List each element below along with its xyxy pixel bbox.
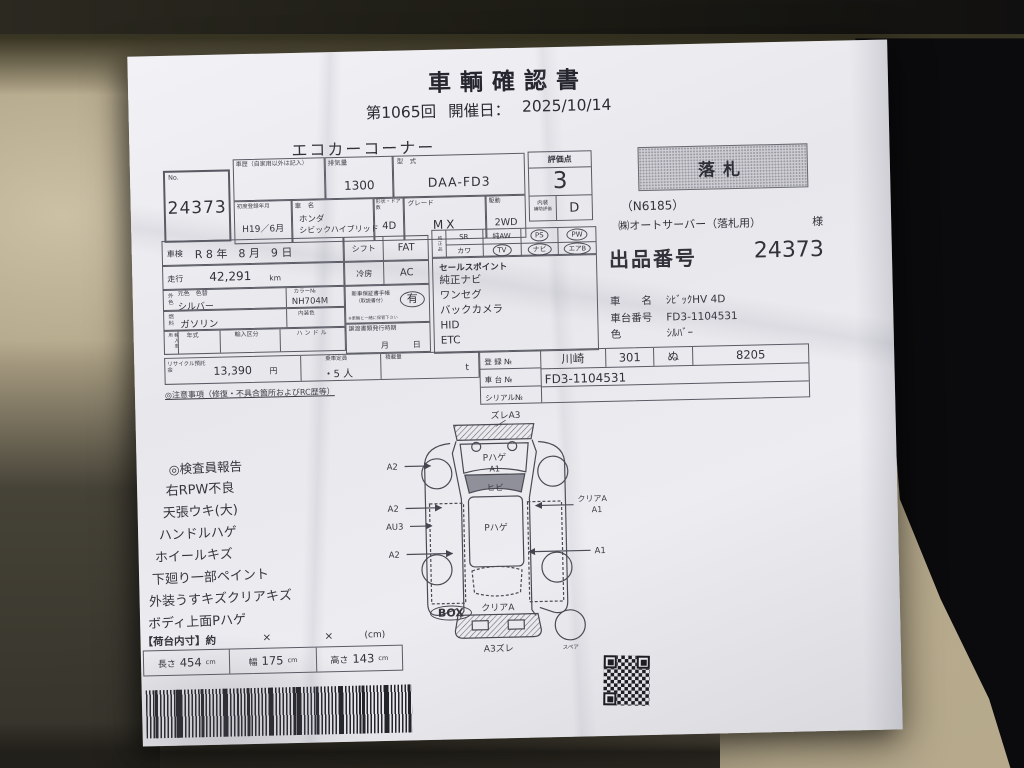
diagram-label-rear: クリアA [481, 602, 515, 614]
exhibit-number-label: 出品番号 [609, 242, 698, 273]
history-cell: 車歴（自家用以外は記入） [233, 157, 326, 201]
displacement-value: 1300 [326, 178, 392, 193]
handle-label: ハンドル [297, 330, 329, 338]
color-heads: 元色 色替 [178, 291, 208, 299]
shift-value: FAT [382, 236, 430, 260]
recycle-row: リサイクル預託金 13,390 円 乗車定員 ・5 人 積載量 t [164, 351, 480, 385]
document-title: 車輌確認書 [318, 58, 699, 101]
inspection-value: R 8 年 8 月 9 日 [195, 244, 293, 262]
winning-bid-stamp: 落札 [637, 143, 808, 191]
exterior-color-label: 外色 [166, 293, 174, 306]
oem-tv: TV [492, 244, 511, 256]
height-unit: cm [378, 654, 388, 662]
reg-no-label: 登 録 № [480, 350, 540, 369]
model-code-label: 型 式 [397, 158, 417, 166]
mileage-label: 走行 [167, 273, 183, 284]
transfer-day: 日 [413, 339, 421, 350]
import-row: 輸入車用 年式 輸入区分 ハンドル [164, 327, 346, 355]
diagram-label-hood: Pハゲ [483, 451, 507, 464]
interior-rating-row: 内装 補助評価 D [530, 194, 593, 220]
shift-row: シフト FAT [343, 235, 429, 262]
displacement-cell: 排気量 1300 [325, 156, 394, 200]
diagram-label-hood-grade: A1 [489, 464, 500, 473]
diagram-label-windshield: ヒビ [487, 483, 504, 493]
drive-value: 2WD [487, 217, 525, 229]
ac-label: 冷房 [345, 262, 384, 285]
fuel-label: 燃料 [166, 314, 174, 327]
oem-pw: PW [566, 228, 587, 240]
length-label: 長さ [158, 656, 176, 669]
mileage-value: 42,291 [209, 269, 251, 284]
cargo-dims-label: 【荷台内寸】約 [142, 633, 216, 650]
model-code-cell: 型 式 DAA-FD3 [393, 153, 526, 198]
cargo-x2: × [324, 630, 333, 642]
width-unit: cm [287, 656, 297, 664]
ac-row: 冷房 AC [344, 260, 430, 286]
oem-pw-wrap: PW [559, 227, 596, 242]
oem-airbag-wrap: エアB [559, 241, 596, 255]
caution-note: ◎注意事項（修復・不具合箇所およびRC歴等） [165, 386, 335, 401]
car-damage-diagram: ズレA3 Pハゲ A1 ヒビ Pハゲ A2 A2 AU3 A2 クリアA A1 … [383, 403, 659, 659]
diagram-label-bottom: A3ズレ [484, 642, 514, 655]
dimension-table: 長さ 454 cm 幅 175 cm 高さ 143 cm [143, 645, 404, 677]
diagram-label-right-3: A1 [594, 546, 605, 556]
seats-label: 乗車定員 [325, 356, 347, 363]
interior-color-label: 内装色 [298, 311, 315, 318]
divider [178, 332, 179, 354]
cargo-x1: × [262, 632, 271, 644]
divider [286, 309, 287, 327]
divider [220, 331, 221, 353]
dark-top-strip [0, 0, 1024, 34]
car-maker: ホンダ [299, 212, 325, 225]
interior-rating-value: D [557, 195, 593, 220]
height-label: 高さ [330, 652, 348, 665]
divider [286, 288, 287, 307]
oem-navi: ナビ [527, 243, 551, 256]
qr-finder [603, 692, 616, 705]
lot-no-label: No. [168, 175, 179, 183]
drive-label: 駆動 [489, 198, 501, 205]
transfer-row: 譲渡書類発行時期 月 日 [345, 322, 431, 354]
length-value: 454 [180, 655, 202, 669]
diagram-label-left-4: A2 [389, 551, 400, 561]
bidder-row: ㈱オートサーバー（落札用） 様 [618, 213, 823, 234]
warranty-label-wrap: 新車保証書手帳 （取説書付） [348, 289, 394, 305]
car-name-value: シビックハイブリッド [299, 223, 379, 236]
width-label: 幅 [248, 654, 257, 667]
displacement-label: 排気量 [328, 160, 348, 168]
inspection-label: 車検 [167, 249, 183, 260]
oem-ps: PS [530, 229, 549, 241]
oem-navi-wrap: ナビ [521, 242, 559, 256]
diagram-label-right-2: A1 [592, 505, 603, 514]
oem-ps-wrap: PS [521, 228, 559, 243]
car-name-label: 車 名 [295, 203, 315, 211]
qr-code [603, 655, 650, 706]
oem-alloy-wheels: 純AW [483, 229, 521, 244]
awarded-car-details: 車 名ｼﾋﾞｯｸHV 4D 車台番号FD3-1104531 色ｼﾙﾊﾞｰ [610, 291, 738, 343]
doors-value: 4D [375, 220, 403, 232]
width-value: 175 [261, 653, 283, 667]
interior-rating-label: 内装 補助評価 [530, 196, 558, 221]
oem-equipment-table: 純正品 SR 純AW PS PW カワ TV ナビ エアB [431, 226, 597, 258]
sales-point-item: ETC [441, 330, 592, 348]
awarded-chassis-row: 車台番号FD3-1104531 [610, 307, 738, 326]
oem-airbag: エアB [563, 242, 591, 255]
rating-box: 評価点 3 内装 補助評価 D [528, 150, 594, 221]
mileage-unit: km [269, 273, 281, 282]
grade-label: グレード [408, 200, 434, 208]
doors-label: 形状・ドア数 [376, 200, 403, 212]
import-class-label: 輸入区分 [235, 332, 259, 339]
diagram-label-spare: スペア [563, 644, 580, 651]
oem-leather: カワ [446, 244, 484, 258]
bidder-honorific: 様 [812, 213, 823, 229]
held-date: 2025/10/14 [522, 96, 612, 120]
diagram-label-left-1: A2 [387, 463, 398, 473]
rating-score: 3 [529, 166, 592, 195]
reg-area: 川崎 [540, 349, 606, 368]
registration-table: 登 録 № 車 台 № シリアル№ 川崎 301 ぬ 8205 FD3-1104… [479, 343, 810, 404]
chassis-no-label: 車 台 № [480, 368, 540, 387]
reg-class: 301 [606, 348, 654, 367]
width-cell: 幅 175 cm [230, 648, 317, 674]
awarded-name-label: 車 名 [610, 293, 666, 311]
awarded-chassis-value: FD3-1104531 [666, 309, 738, 323]
session-round: 第1065回 [365, 100, 436, 124]
barcode [146, 684, 413, 738]
height-value: 143 [352, 651, 374, 665]
shift-label: シフト [344, 237, 384, 261]
load-unit: t [465, 363, 469, 373]
qr-finder [637, 656, 650, 669]
exhibit-number-value: 24373 [754, 237, 825, 264]
divider [380, 354, 382, 379]
diagram-label-roof: Pハゲ [484, 521, 508, 534]
diagram-label-left-3: AU3 [386, 523, 404, 533]
divider [300, 356, 302, 381]
lot-number: 24373 [166, 197, 229, 218]
recycle-label: リサイクル預託金 [167, 361, 209, 375]
warranty-row: 新車保証書手帳 （取説書付） 有 ※車輌と一緒に保管下さい [345, 284, 431, 324]
held-date-label: 開催日： [448, 98, 510, 121]
color-no-label: カラー№ [294, 288, 316, 295]
awarded-color-value: ｼﾙﾊﾞｰ [667, 327, 694, 340]
divider [279, 329, 280, 351]
first-registration-value: H19／6月 [235, 221, 291, 235]
diagram-label-left-2: A2 [388, 505, 399, 515]
history-label: 車歴（自家用以外は記入） [236, 161, 308, 170]
length-unit: cm [206, 658, 216, 666]
lot-number-box: No. 24373 [163, 169, 232, 243]
fuel-value: ガソリン [180, 316, 218, 331]
model-code-value: DAA-FD3 [394, 173, 524, 191]
load-label: 積載量 [385, 355, 402, 362]
import-year-label: 年式 [187, 333, 199, 340]
cargo-unit-note: (cm) [364, 630, 385, 640]
qr-finder [604, 655, 617, 668]
awarded-color-row: 色ｼﾙﾊﾞｰ [611, 324, 739, 343]
reg-kana: ぬ [654, 347, 693, 366]
registration-label-col: 登 録 № 車 台 № シリアル№ [480, 350, 542, 403]
awarded-color-label: 色 [611, 326, 667, 344]
serial-no-value [541, 391, 545, 404]
warranty-value: 有 [400, 291, 425, 308]
auction-sheet-paper: 車輌確認書 第1065回 開催日： 2025/10/14 エコカーコーナー No… [127, 39, 902, 746]
oem-tv-wrap: TV [483, 243, 521, 257]
serial-no-label: シリアル№ [481, 386, 541, 404]
transfer-month: 月 [381, 340, 389, 351]
ac-value: AC [383, 261, 430, 284]
oem-sr: SR [445, 230, 483, 245]
awarded-chassis-label: 車台番号 [610, 309, 666, 327]
diagram-label-top: ズレA3 [490, 409, 520, 422]
inspector-report: ◎検査員報告 右RPW不良 天張ウキ(大) ハンドルハゲ ホイールキズ 下廻り一… [140, 453, 293, 636]
first-registration-label: 初度登録年月 [237, 204, 270, 211]
bidder-name: ㈱オートサーバー（落札用） [618, 214, 761, 233]
warranty-note: ※車輌と一緒に保管下さい [348, 314, 429, 322]
height-cell: 高さ 143 cm [316, 646, 402, 672]
warranty-sub-label: （取説書付） [348, 297, 394, 305]
sales-points-box: セールスポイント 純正ナビ ワンセグ バックカメラ HID ETC [432, 254, 599, 354]
recycle-unit: 円 [269, 365, 277, 376]
color-no-value: NH704M [292, 296, 329, 307]
transfer-label: 譲渡書類発行時期 [348, 326, 396, 334]
bidder-code: （N6185） [621, 196, 685, 214]
length-cell: 長さ 454 cm [144, 650, 231, 676]
seats-value: ・5 人 [323, 365, 353, 381]
awarded-name-value: ｼﾋﾞｯｸHV 4D [666, 293, 726, 306]
diagram-label-right-1: クリアA [577, 494, 607, 504]
recycle-value: 13,390 [213, 364, 252, 378]
